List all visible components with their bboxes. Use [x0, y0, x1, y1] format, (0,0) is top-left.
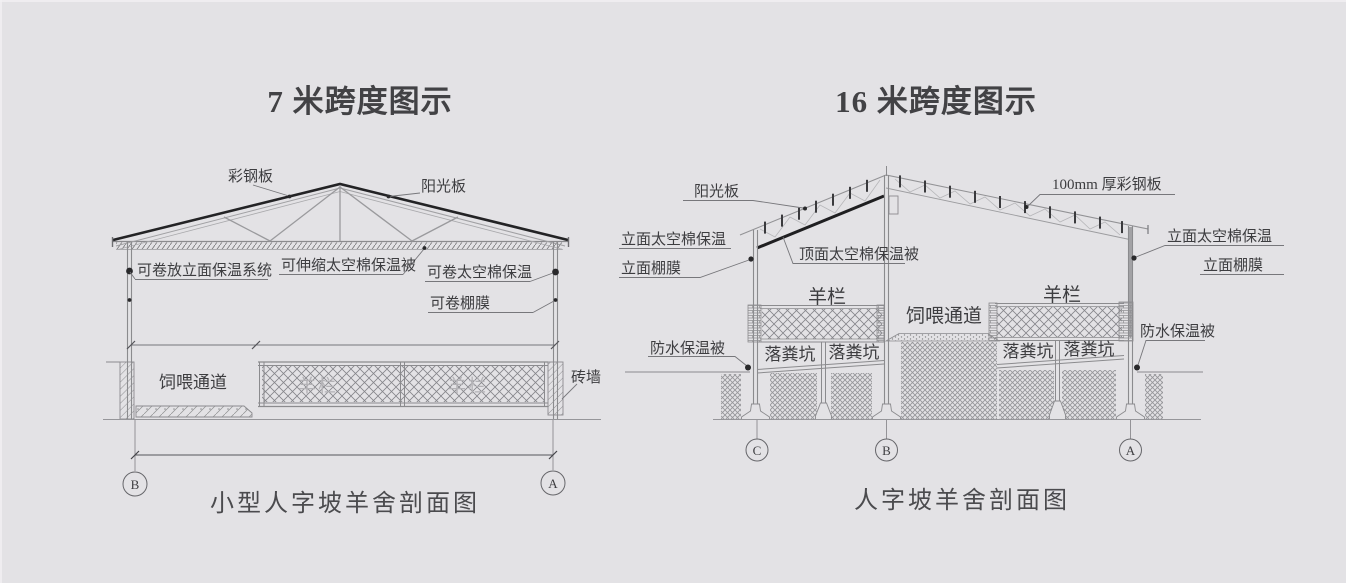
label-manure-pit-4: 落粪坑 [1064, 340, 1115, 359]
axis-marker-a: A [548, 476, 558, 491]
label-top-quilt: 顶面太空棉保温被 [799, 246, 919, 263]
sheep-pen-left-structure [748, 305, 884, 342]
label-steel-panel-100: 100mm 厚彩钢板 [1052, 175, 1162, 193]
label-facade-film-left: 立面棚膜 [621, 260, 681, 277]
label-feeding-passage: 饲喂通道 [159, 373, 227, 392]
label-rollable-cotton: 可卷太空棉保温 [427, 264, 532, 281]
right-axis-markers [746, 420, 1142, 461]
label-feeding-passage: 饲喂通道 [906, 305, 982, 327]
brick-wall-left [120, 362, 134, 419]
label-facade-cotton-right: 立面太空棉保温 [1167, 228, 1272, 245]
roof-purlins-left [765, 180, 867, 234]
label-sheep-pen-right: 羊栏 [1043, 284, 1081, 306]
frame-highlight-left [0, 0, 2, 583]
label-sun-panel: 阳光板 [421, 177, 466, 195]
roof-bracing-left-slope [760, 180, 880, 237]
column-dot [128, 298, 132, 302]
label-manure-pit-1: 落粪坑 [765, 345, 816, 364]
axis-marker-c: C [753, 443, 762, 458]
right-diagram: 16 米跨度图示 [619, 84, 1284, 514]
sheep-barn-drawing: 7 米跨度图示 [0, 0, 1346, 583]
column-bracket [889, 196, 898, 214]
roof-bottom-chord-right [886, 188, 1132, 240]
left-axis-dimension [123, 420, 565, 496]
feeding-passage-surface [886, 334, 999, 342]
left-diagram: 7 米跨度图示 [103, 84, 601, 517]
brick-wall-right [548, 362, 563, 415]
pen-watermark: 羊栏 [298, 376, 338, 396]
label-telescopic-quilt: 可伸缩太空棉保温被 [281, 257, 416, 274]
label-waterproof-right: 防水保温被 [1140, 323, 1215, 340]
column-dot [126, 268, 133, 275]
label-manure-pit-3: 落粪坑 [1003, 342, 1054, 361]
label-sheep-pen-left: 羊栏 [808, 286, 846, 308]
right-diagram-title: 16 米跨度图示 [835, 84, 1037, 119]
interior-dimension-line [127, 341, 559, 349]
label-waterproof-left: 防水保温被 [650, 340, 725, 357]
blueprint-canvas: 7 米跨度图示 [0, 0, 1346, 583]
left-diagram-title: 7 米跨度图示 [267, 84, 452, 119]
concrete-floor-slab [136, 406, 252, 417]
label-brick-wall: 砖墙 [571, 369, 601, 386]
label-sun-panel: 阳光板 [694, 182, 739, 200]
label-rollable-film: 可卷棚膜 [430, 295, 490, 312]
label-facade-film-right: 立面棚膜 [1203, 257, 1263, 274]
pen-watermark: 羊栏 [448, 376, 488, 396]
axis-marker-b: B [882, 443, 891, 458]
label-manure-pit-2: 落粪坑 [829, 343, 880, 362]
ceiling-insulation-band [116, 243, 562, 250]
sheep-pen-right-structure [989, 302, 1133, 341]
left-diagram-caption: 小型人字坡羊舍剖面图 [210, 490, 480, 517]
label-steel-panel: 彩钢板 [228, 167, 273, 185]
axis-marker-b: B [131, 477, 140, 492]
column-dot [552, 269, 559, 276]
label-rollable-facade-system: 可卷放立面保温系统 [137, 262, 272, 279]
axis-marker-a: A [1126, 443, 1136, 458]
right-diagram-caption: 人字坡羊舍剖面图 [854, 487, 1070, 514]
frame-highlight-top [0, 0, 1346, 2]
label-facade-cotton-left: 立面太空棉保温 [621, 231, 726, 248]
